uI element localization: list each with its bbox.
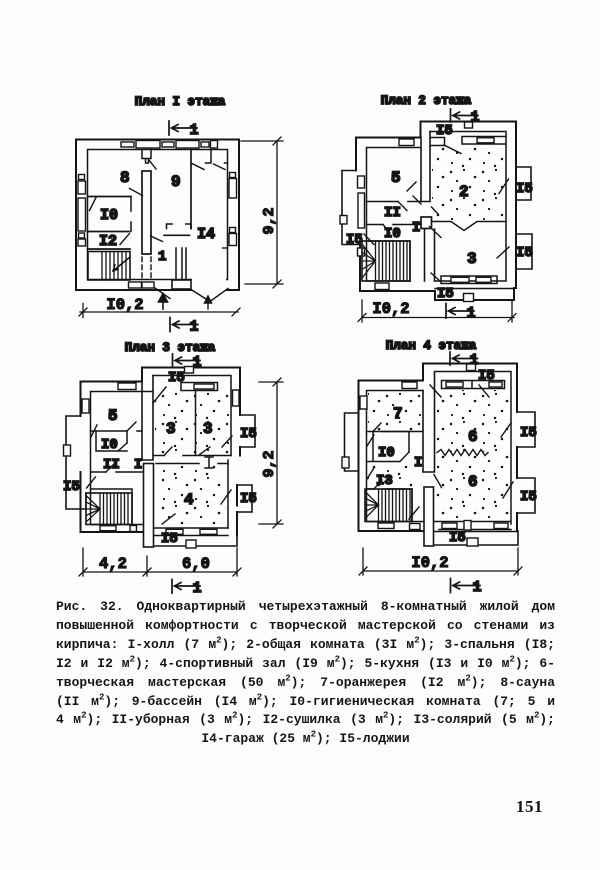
- svg-text:План 2 этажа: План 2 этажа: [381, 94, 472, 108]
- svg-text:6: 6: [468, 428, 478, 446]
- svg-text:2: 2: [459, 183, 469, 201]
- svg-text:I0: I0: [101, 437, 118, 453]
- svg-text:I5: I5: [161, 531, 178, 547]
- svg-text:I: I: [414, 455, 422, 471]
- svg-text:4: 4: [184, 491, 194, 509]
- svg-text:I4: I4: [197, 226, 215, 243]
- svg-text:II: II: [384, 205, 401, 221]
- svg-text:План 3 этажа: План 3 этажа: [125, 341, 216, 355]
- svg-text:1: 1: [466, 305, 475, 322]
- svg-text:I5: I5: [436, 123, 453, 139]
- svg-text:I5: I5: [346, 232, 363, 248]
- svg-text:I: I: [134, 457, 142, 473]
- svg-text:I5: I5: [478, 368, 495, 384]
- svg-text:I0: I0: [378, 445, 395, 461]
- svg-text:1: 1: [192, 580, 201, 597]
- svg-text:9,2: 9,2: [261, 450, 278, 477]
- svg-text:9: 9: [171, 173, 181, 191]
- svg-text:I5: I5: [168, 370, 185, 386]
- svg-text:4,2: 4,2: [99, 555, 127, 573]
- svg-text:I5: I5: [63, 479, 80, 495]
- svg-text:I0: I0: [384, 226, 401, 242]
- svg-text:I5: I5: [449, 530, 466, 546]
- svg-text:1: 1: [158, 249, 166, 265]
- svg-text:5: 5: [108, 407, 118, 425]
- svg-text:I0,2: I0,2: [411, 554, 448, 572]
- svg-text:1: 1: [472, 579, 481, 596]
- svg-text:I5: I5: [240, 491, 257, 507]
- svg-text:План I этажа: План I этажа: [135, 95, 226, 109]
- svg-text:I2: I2: [99, 233, 117, 250]
- svg-text:1: 1: [189, 122, 198, 139]
- svg-text:I: I: [412, 220, 420, 236]
- svg-text:6: 6: [468, 473, 478, 491]
- svg-text:I5: I5: [520, 489, 537, 505]
- svg-text:3: 3: [467, 250, 477, 268]
- svg-text:5: 5: [391, 169, 401, 187]
- svg-text:8: 8: [120, 169, 130, 187]
- svg-text:7: 7: [393, 405, 403, 423]
- svg-text:II: II: [103, 457, 120, 473]
- svg-text:I5: I5: [516, 245, 533, 261]
- svg-text:I3: I3: [376, 473, 393, 489]
- svg-text:3: 3: [203, 420, 213, 438]
- svg-text:6,0: 6,0: [182, 555, 210, 573]
- svg-text:I5: I5: [437, 286, 454, 302]
- svg-text:I5: I5: [520, 425, 537, 441]
- svg-text:I5: I5: [240, 426, 257, 442]
- svg-text:I0,2: I0,2: [106, 296, 143, 314]
- svg-text:I0: I0: [100, 207, 118, 224]
- svg-text:I0,2: I0,2: [372, 300, 409, 318]
- svg-text:1: 1: [189, 319, 198, 336]
- svg-text:9,2: 9,2: [261, 207, 278, 234]
- svg-text:I5: I5: [516, 181, 533, 197]
- svg-text:3: 3: [166, 420, 176, 438]
- svg-text:План 4 этажа: План 4 этажа: [386, 339, 477, 353]
